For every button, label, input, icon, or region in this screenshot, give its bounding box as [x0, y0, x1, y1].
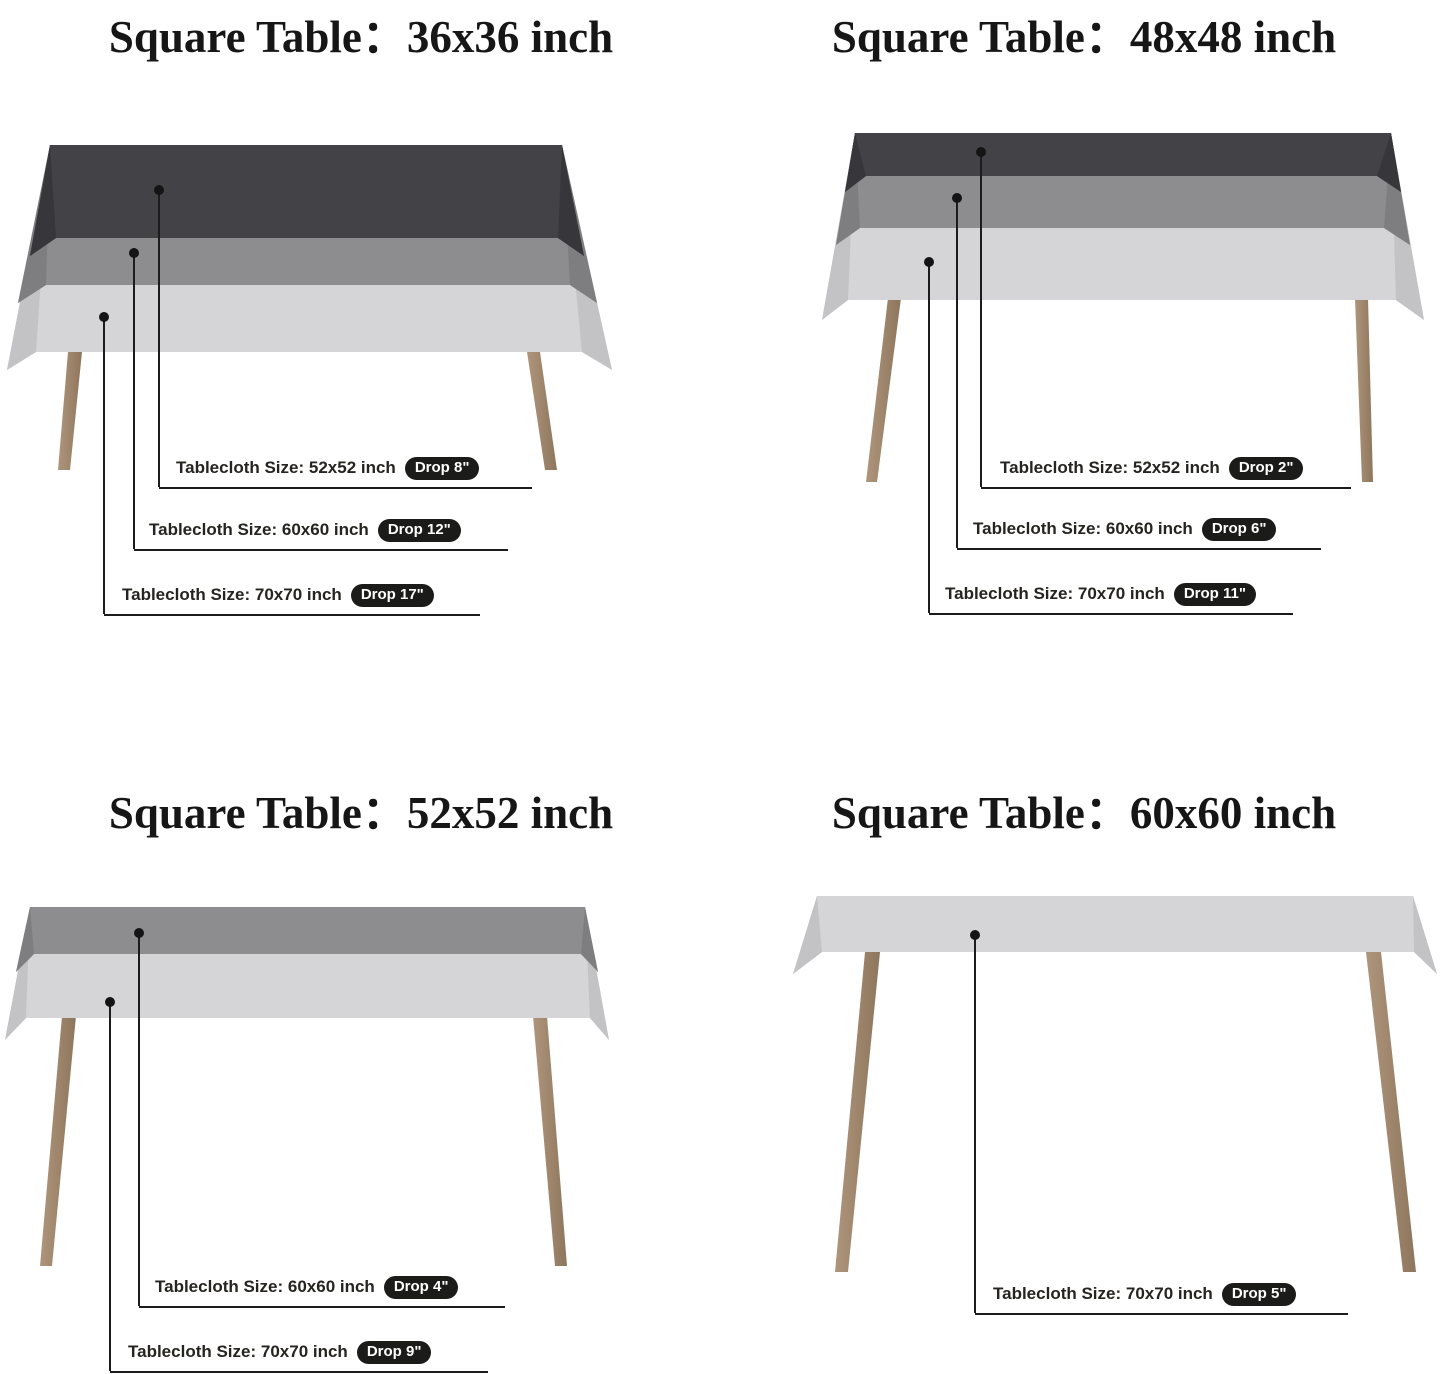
table-leg-left	[40, 1016, 76, 1266]
callout-line	[103, 317, 105, 614]
callout-line	[974, 935, 976, 1313]
table-leg-left	[835, 952, 880, 1272]
table-52x52-illustration	[0, 900, 620, 1270]
drop-badge: Drop 5"	[1222, 1283, 1297, 1306]
tablecloth-52x52-fold-right	[558, 145, 584, 256]
callout-label: Tablecloth Size: 70x70 inch	[122, 585, 342, 605]
callout-dot	[952, 193, 962, 203]
callout-52x52: Tablecloth Size: 52x52 inch Drop 8"	[159, 449, 532, 489]
callout-line	[928, 262, 930, 613]
callout-line	[133, 253, 135, 549]
table-leg-right	[1355, 298, 1373, 482]
callout-label: Tablecloth Size: 70x70 inch	[945, 584, 1165, 604]
table-leg-right	[1366, 952, 1416, 1272]
panel-title-36x36: Square Table：36x36 inch	[0, 0, 722, 65]
callout-dot	[129, 248, 139, 258]
table-48x48-illustration	[780, 120, 1445, 500]
callout-line	[956, 198, 958, 548]
callout-line	[980, 152, 982, 487]
tablecloth-70x70-fold-right	[1413, 896, 1437, 974]
callout-label: Tablecloth Size: 60x60 inch	[149, 520, 369, 540]
tablecloth-70x70-layer	[793, 896, 1437, 974]
drop-badge: Drop 2"	[1229, 457, 1304, 480]
callout-60x60: Tablecloth Size: 60x60 inch Drop 12"	[134, 511, 508, 551]
panel-title-52x52: Square Table：52x52 inch	[0, 776, 722, 841]
callout-60x60: Tablecloth Size: 60x60 inch Drop 6"	[957, 510, 1321, 550]
callout-line	[158, 190, 160, 487]
callout-70x70: Tablecloth Size: 70x70 inch Drop 9"	[110, 1333, 488, 1373]
callout-70x70: Tablecloth Size: 70x70 inch Drop 17"	[104, 576, 480, 616]
callout-60x60: Tablecloth Size: 60x60 inch Drop 4"	[139, 1268, 505, 1308]
tablecloth-size-guide: Square Table：36x36 inch Square Table：48x…	[0, 0, 1445, 1374]
callout-label: Tablecloth Size: 60x60 inch	[973, 519, 1193, 539]
panel-title-48x48: Square Table：48x48 inch	[723, 0, 1445, 65]
tablecloth-70x70-fold-left	[793, 896, 822, 974]
drop-badge: Drop 11"	[1174, 583, 1256, 606]
callout-dot	[99, 312, 109, 322]
callout-label: Tablecloth Size: 60x60 inch	[155, 1277, 375, 1297]
table-60x60-illustration	[723, 880, 1445, 1280]
table-leg-left	[58, 352, 82, 470]
drop-badge: Drop 12"	[378, 519, 461, 542]
callout-dot	[976, 147, 986, 157]
callout-dot	[970, 930, 980, 940]
drop-badge: Drop 6"	[1202, 518, 1277, 541]
table-36x36-illustration	[0, 140, 620, 480]
drop-badge: Drop 8"	[405, 457, 480, 480]
callout-label: Tablecloth Size: 52x52 inch	[176, 458, 396, 478]
drop-badge: Drop 17"	[351, 584, 434, 607]
panel-title-60x60: Square Table：60x60 inch	[723, 776, 1445, 841]
drop-badge: Drop 4"	[384, 1276, 459, 1299]
callout-70x70: Tablecloth Size: 70x70 inch Drop 5"	[975, 1275, 1348, 1315]
callout-dot	[134, 928, 144, 938]
table-leg-left	[866, 298, 901, 482]
callout-dot	[105, 997, 115, 1007]
callout-label: Tablecloth Size: 52x52 inch	[1000, 458, 1220, 478]
callout-dot	[154, 185, 164, 195]
callout-line	[109, 1002, 111, 1371]
callout-dot	[924, 257, 934, 267]
table-leg-right	[533, 1016, 567, 1266]
callout-52x52: Tablecloth Size: 52x52 inch Drop 2"	[981, 449, 1351, 489]
drop-badge: Drop 9"	[357, 1341, 432, 1364]
callout-label: Tablecloth Size: 70x70 inch	[993, 1284, 1213, 1304]
callout-line	[138, 933, 140, 1306]
callout-70x70: Tablecloth Size: 70x70 inch Drop 11"	[929, 575, 1293, 615]
callout-label: Tablecloth Size: 70x70 inch	[128, 1342, 348, 1362]
